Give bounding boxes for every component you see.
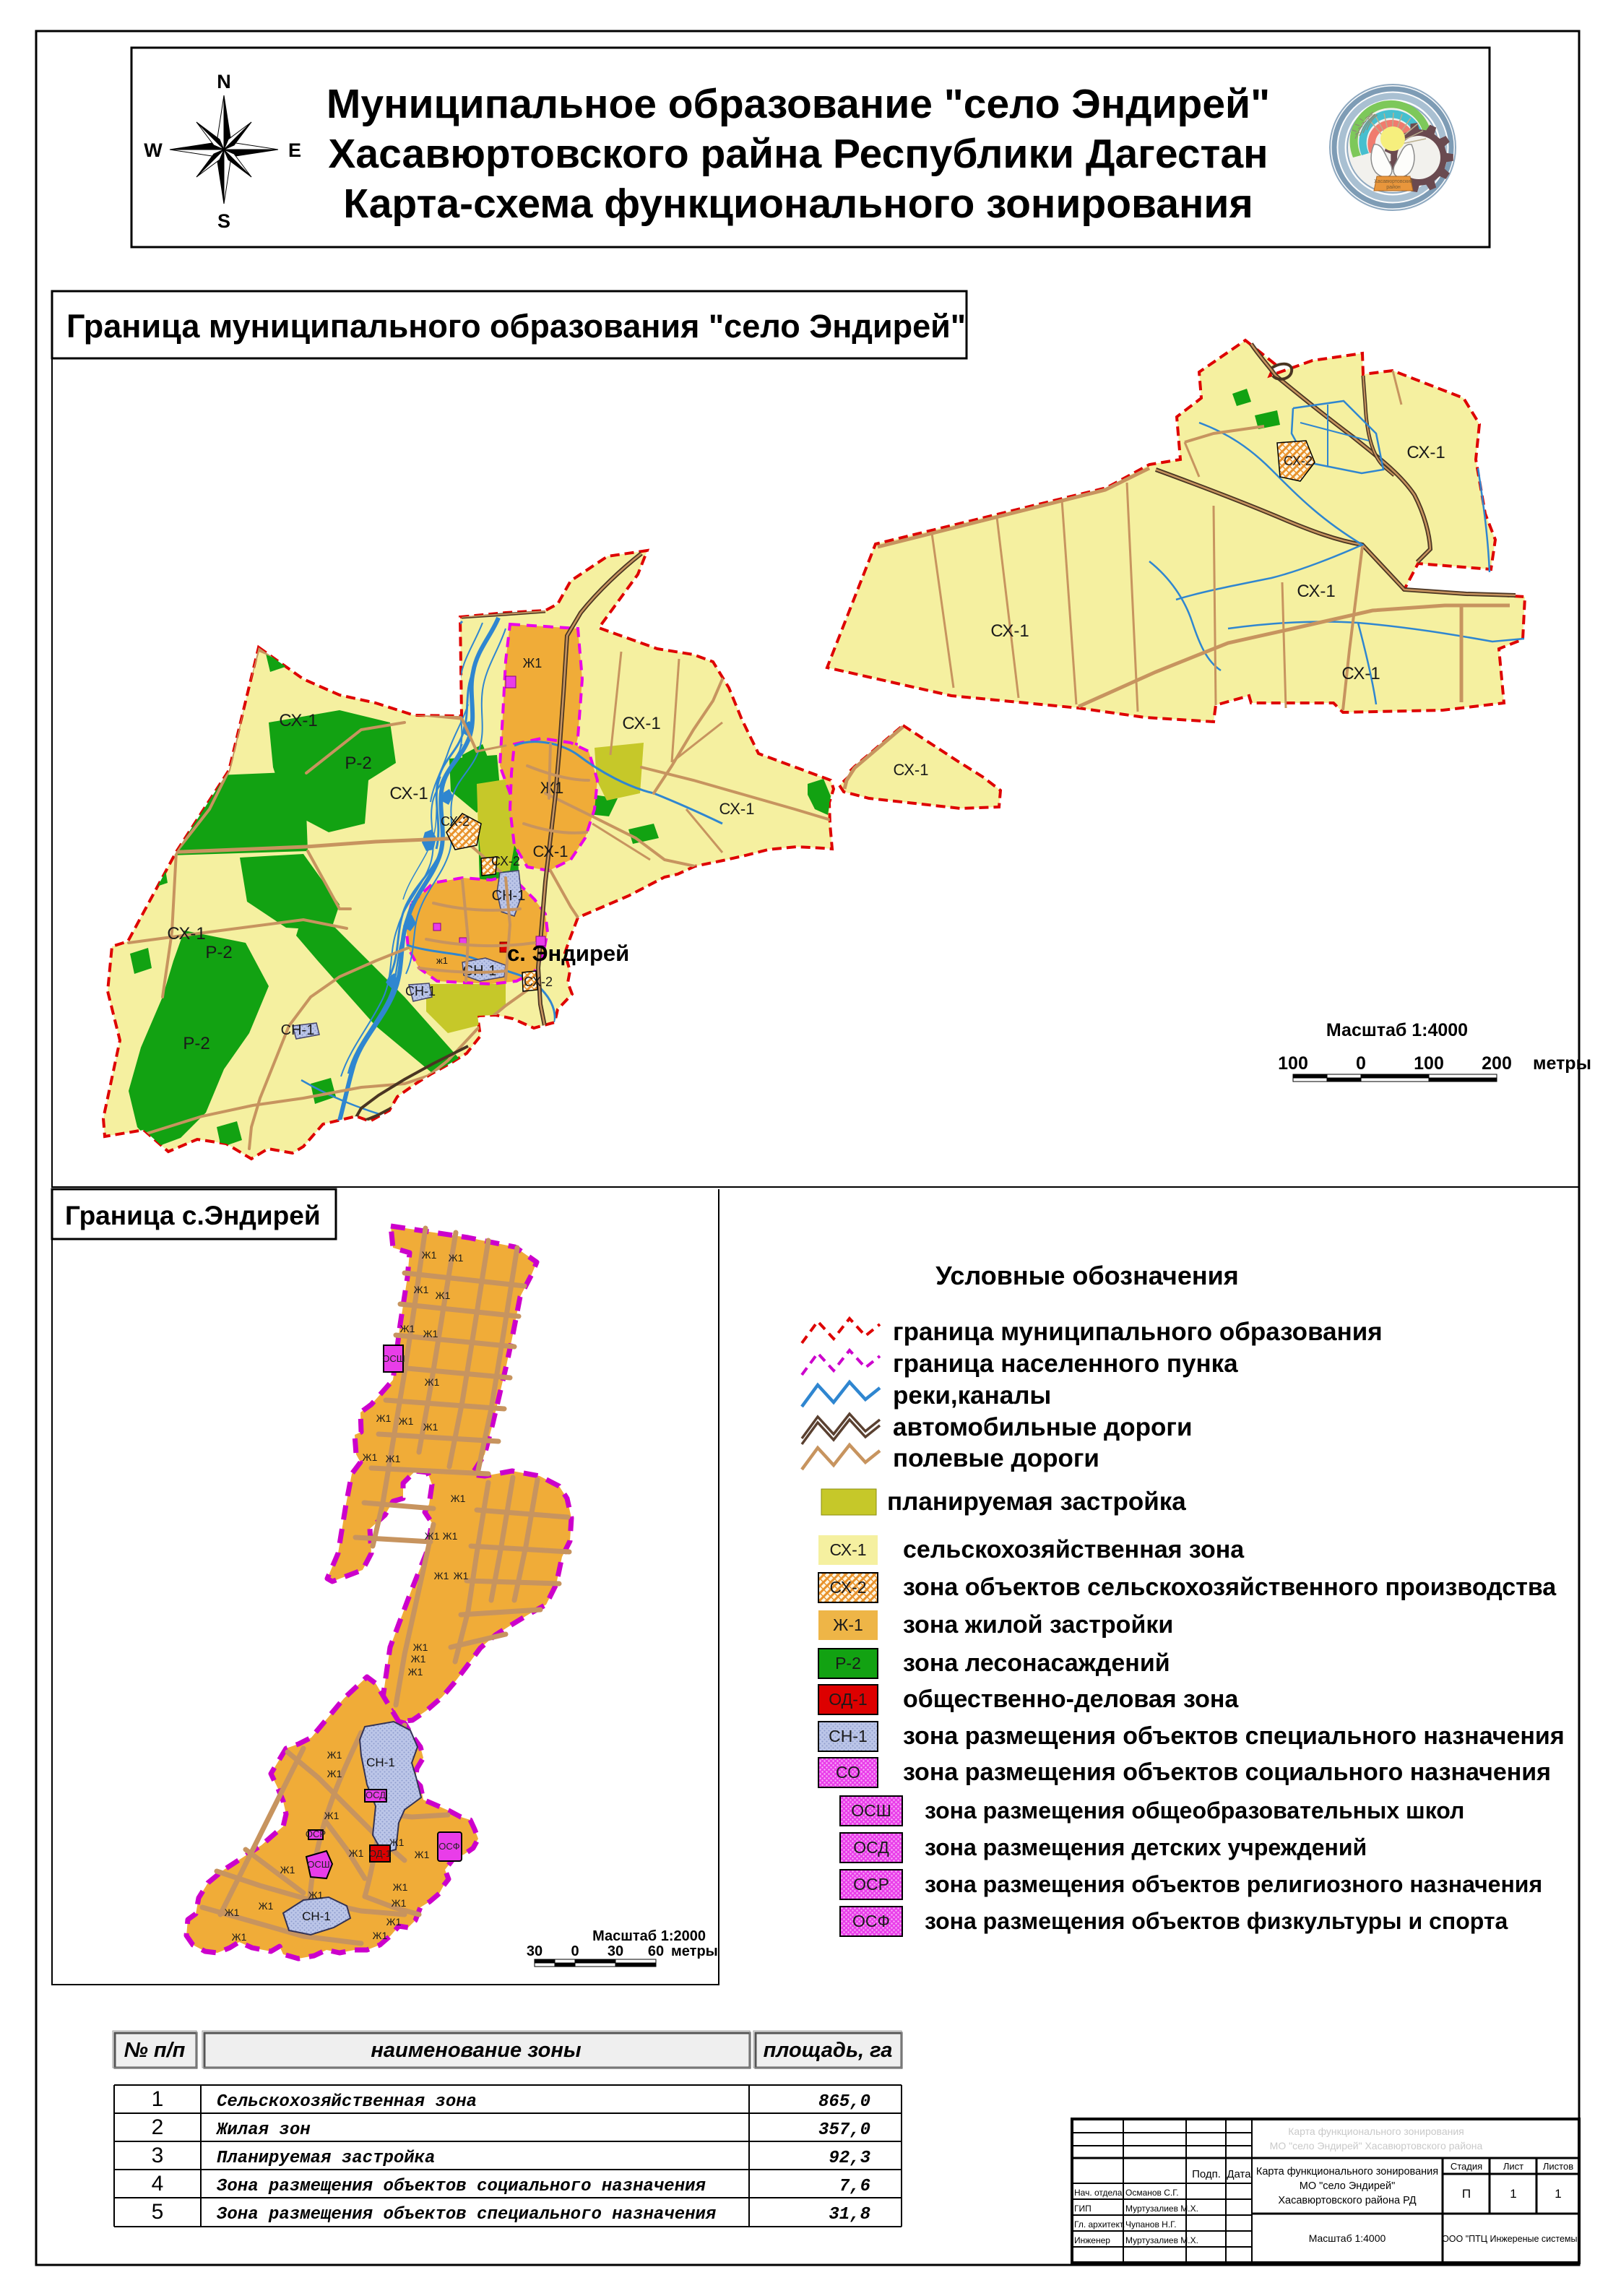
- svg-text:СХ-1: СХ-1: [1406, 443, 1445, 462]
- svg-text:Ж1: Ж1: [389, 1837, 405, 1848]
- svg-text:Хасавюртовского района РД: Хасавюртовского района РД: [1278, 2195, 1416, 2206]
- svg-text:зона лесонасаждений: зона лесонасаждений: [903, 1649, 1170, 1677]
- svg-text:МО "село Эндирей" Хасавюртовск: МО "село Эндирей" Хасавюртовского района: [1270, 2140, 1483, 2152]
- svg-text:Ж1: Ж1: [540, 779, 564, 797]
- svg-text:СХ-1: СХ-1: [389, 784, 428, 803]
- svg-text:ОСР: ОСР: [306, 1829, 326, 1839]
- svg-text:Гл. архитект.: Гл. архитект.: [1074, 2219, 1125, 2230]
- svg-text:СХ-2: СХ-2: [1284, 454, 1313, 468]
- svg-text:Р-2: Р-2: [835, 1654, 861, 1673]
- svg-text:сельскохозяйственная зона: сельскохозяйственная зона: [903, 1536, 1245, 1563]
- svg-text:зона размещения объектов физку: зона размещения объектов физкультуры и с…: [925, 1908, 1508, 1934]
- svg-text:ж1: ж1: [436, 955, 448, 966]
- svg-text:Ж1: Ж1: [436, 1290, 451, 1301]
- svg-text:ОСШ: ОСШ: [851, 1801, 891, 1820]
- svg-text:Ж1: Ж1: [413, 1641, 428, 1653]
- svg-text:Граница муниципального образов: Граница муниципального образования "село…: [66, 308, 966, 345]
- svg-text:П: П: [1462, 2187, 1471, 2201]
- svg-text:Р-2: Р-2: [183, 1034, 209, 1053]
- svg-text:Зона размещения объектов социа: Зона размещения объектов социального наз…: [216, 2177, 706, 2196]
- svg-text:Ж1: Ж1: [451, 1493, 466, 1504]
- svg-text:Сельскохозяйственная зона: Сельскохозяйственная зона: [217, 2092, 477, 2112]
- svg-text:СХ-2: СХ-2: [829, 1578, 866, 1597]
- svg-text:Муртузалиев М.Х.: Муртузалиев М.Х.: [1125, 2235, 1198, 2245]
- svg-text:Ж1: Ж1: [386, 1453, 401, 1464]
- svg-text:СХ-2: СХ-2: [441, 814, 470, 829]
- svg-text:реки,каналы: реки,каналы: [893, 1381, 1051, 1410]
- svg-text:Граница с.Эндирей: Граница с.Эндирей: [65, 1201, 321, 1230]
- svg-text:ОСД: ОСД: [366, 1790, 386, 1800]
- svg-text:Стадия: Стадия: [1451, 2161, 1482, 2172]
- svg-text:Листов: Листов: [1543, 2161, 1573, 2172]
- svg-text:4: 4: [152, 2172, 164, 2196]
- svg-text:Ж1: Ж1: [373, 1930, 388, 1941]
- svg-text:Ж1: Ж1: [363, 1451, 378, 1463]
- svg-text:СХ-1: СХ-1: [279, 711, 317, 730]
- svg-text:Ж1: Ж1: [392, 1897, 407, 1909]
- svg-text:200: 200: [1482, 1053, 1512, 1074]
- svg-text:Османов С.Г.: Османов С.Г.: [1125, 2188, 1179, 2198]
- svg-text:E: E: [288, 139, 301, 161]
- svg-text:7,6: 7,6: [839, 2177, 870, 2196]
- svg-text:зона размещения объектов специ: зона размещения объектов специального на…: [903, 1722, 1565, 1750]
- svg-text:наименование зоны: наименование зоны: [371, 2039, 581, 2062]
- svg-text:Муниципальное образование "сел: Муниципальное образование "село Эндирей": [327, 81, 1270, 127]
- svg-text:метры: метры: [671, 1943, 718, 1959]
- svg-text:Р-2: Р-2: [345, 754, 371, 773]
- svg-text:Ж1: Ж1: [393, 1881, 408, 1893]
- svg-text:1: 1: [152, 2087, 164, 2111]
- svg-text:ООО "ПТЦ Инжереные системы": ООО "ПТЦ Инжереные системы": [1442, 2234, 1581, 2244]
- svg-text:зона размещения детских учрежд: зона размещения детских учреждений: [925, 1834, 1367, 1860]
- svg-text:СХ-1: СХ-1: [990, 621, 1029, 641]
- svg-text:30: 30: [527, 1943, 543, 1959]
- svg-text:Карта-схема функционального зо: Карта-схема функционального зонирования: [343, 181, 1253, 227]
- svg-text:зона жилой застройки: зона жилой застройки: [903, 1611, 1173, 1639]
- svg-text:Подп.: Подп.: [1192, 2168, 1221, 2180]
- svg-text:Зона размещения объектов специ: Зона размещения объектов специального на…: [216, 2205, 717, 2224]
- svg-text:Ж1: Ж1: [400, 1323, 415, 1334]
- svg-text:Условные обозначения: Условные обозначения: [935, 1261, 1238, 1290]
- svg-text:Ж1: Ж1: [422, 1249, 437, 1261]
- svg-text:СО: СО: [836, 1763, 860, 1782]
- svg-text:ОСР: ОСР: [853, 1875, 889, 1894]
- svg-text:Ж1: Ж1: [523, 656, 543, 670]
- svg-text:Ж1: Ж1: [443, 1530, 458, 1542]
- svg-text:Ж1: Ж1: [414, 1284, 429, 1295]
- svg-text:Дата: Дата: [1227, 2168, 1251, 2180]
- svg-text:Чупанов Н.Г.: Чупанов Н.Г.: [1125, 2219, 1177, 2230]
- svg-text:ОД-1: ОД-1: [369, 1848, 391, 1859]
- svg-text:Ж1: Ж1: [225, 1907, 240, 1918]
- svg-text:СХ-1: СХ-1: [829, 1540, 866, 1559]
- svg-text:СХ-1: СХ-1: [894, 761, 929, 779]
- svg-text:граница населенного пунка: граница населенного пунка: [893, 1350, 1238, 1378]
- svg-text:Лист: Лист: [1503, 2161, 1523, 2172]
- svg-text:92,3: 92,3: [829, 2149, 870, 2168]
- svg-text:Ж1: Ж1: [324, 1810, 340, 1821]
- svg-text:100: 100: [1414, 1053, 1444, 1074]
- svg-text:зона размещения объектов социа: зона размещения объектов социального наз…: [903, 1758, 1551, 1786]
- svg-text:Ж1: Ж1: [280, 1864, 295, 1876]
- svg-text:МО "село Эндирей": МО "село Эндирей": [1300, 2180, 1395, 2192]
- svg-text:зона объектов сельскохозяйстве: зона объектов сельскохозяйственного прои…: [903, 1574, 1557, 1601]
- svg-text:Ж1: Ж1: [425, 1376, 440, 1388]
- svg-text:ОСШ: ОСШ: [382, 1353, 405, 1364]
- svg-text:Ж1: Ж1: [408, 1666, 423, 1678]
- svg-text:Инженер: Инженер: [1074, 2235, 1110, 2245]
- svg-text:№ п/п: № п/п: [124, 2039, 186, 2062]
- svg-text:СХ-1: СХ-1: [167, 924, 205, 944]
- svg-text:Ж1: Ж1: [425, 1530, 440, 1542]
- svg-text:СХ-1: СХ-1: [1297, 582, 1335, 601]
- svg-text:Ж1: Ж1: [386, 1916, 402, 1928]
- svg-text:СХ-1: СХ-1: [1341, 664, 1380, 683]
- svg-text:Р-2: Р-2: [205, 943, 232, 962]
- svg-text:Нач. отдела: Нач. отдела: [1074, 2188, 1123, 2198]
- svg-text:Ж1: Ж1: [259, 1900, 274, 1912]
- svg-text:ОСД: ОСД: [853, 1838, 889, 1857]
- svg-text:Ж1: Ж1: [349, 1847, 364, 1859]
- svg-text:Жилая зон: Жилая зон: [215, 2120, 311, 2140]
- svg-text:ОСФ: ОСФ: [852, 1912, 890, 1930]
- svg-text:ОСШ: ОСШ: [307, 1859, 329, 1870]
- svg-text:31,8: 31,8: [829, 2205, 870, 2224]
- svg-text:автомобильные дороги: автомобильные дороги: [893, 1413, 1192, 1441]
- svg-text:с. Эндирей: с. Эндирей: [507, 941, 629, 966]
- svg-text:100: 100: [1278, 1053, 1308, 1074]
- svg-text:СХ-1: СХ-1: [533, 842, 569, 860]
- svg-text:ОД-1: ОД-1: [829, 1690, 867, 1709]
- svg-text:Муртузалиев М.Х.: Муртузалиев М.Х.: [1125, 2204, 1198, 2214]
- svg-text:ГИП: ГИП: [1074, 2204, 1092, 2214]
- svg-text:Масштаб 1:4000: Масштаб 1:4000: [1309, 2232, 1386, 2244]
- svg-text:Масштаб 1:2000: Масштаб 1:2000: [592, 1928, 706, 1944]
- svg-text:Ж1: Ж1: [423, 1421, 438, 1433]
- svg-text:Ж1: Ж1: [434, 1570, 449, 1581]
- svg-text:0: 0: [571, 1943, 579, 1959]
- svg-text:район: район: [1386, 184, 1401, 190]
- svg-text:СХ-2: СХ-2: [491, 854, 520, 868]
- svg-text:Хасавюртовский: Хасавюртовский: [1374, 178, 1413, 184]
- svg-text:Карта функционального зонирова: Карта функционального зонирования: [1256, 2166, 1438, 2178]
- svg-text:1: 1: [1555, 2187, 1561, 2201]
- svg-text:Ж1: Ж1: [308, 1889, 324, 1901]
- svg-text:5: 5: [152, 2200, 164, 2224]
- svg-text:2: 2: [152, 2115, 164, 2139]
- svg-text:СН-1: СН-1: [366, 1756, 395, 1769]
- svg-text:Ж1: Ж1: [449, 1252, 464, 1264]
- svg-text:площадь, га: площадь, га: [764, 2039, 893, 2062]
- svg-text:Ж1: Ж1: [411, 1653, 426, 1665]
- svg-text:Карта функционального зонирова: Карта функционального зонирования: [1288, 2125, 1464, 2137]
- svg-text:Ж1: Ж1: [327, 1768, 342, 1779]
- svg-text:ОСФ: ОСФ: [438, 1841, 460, 1852]
- svg-text:Ж1: Ж1: [399, 1415, 414, 1427]
- svg-text:Ж1: Ж1: [415, 1849, 430, 1860]
- svg-text:30: 30: [608, 1943, 623, 1959]
- svg-text:Ж1: Ж1: [327, 1749, 342, 1761]
- svg-text:S: S: [217, 210, 230, 232]
- svg-text:Ж1: Ж1: [376, 1412, 392, 1424]
- svg-text:СХ-2: СХ-2: [524, 975, 553, 989]
- svg-text:1: 1: [1510, 2187, 1516, 2201]
- svg-text:граница муниципального образов: граница муниципального образования: [893, 1318, 1383, 1346]
- svg-text:СН-1: СН-1: [281, 1022, 315, 1038]
- svg-text:общественно-деловая зона: общественно-деловая зона: [903, 1686, 1239, 1713]
- svg-text:СН-1: СН-1: [829, 1727, 868, 1745]
- svg-text:Планируемая застройка: Планируемая застройка: [217, 2149, 435, 2168]
- svg-text:357,0: 357,0: [818, 2120, 870, 2140]
- svg-text:полевые дороги: полевые дороги: [893, 1444, 1099, 1472]
- svg-text:3: 3: [152, 2144, 164, 2167]
- svg-text:N: N: [217, 71, 231, 92]
- svg-text:Ж1: Ж1: [232, 1931, 247, 1943]
- svg-text:СН-1: СН-1: [405, 984, 436, 998]
- svg-text:865,0: 865,0: [818, 2092, 870, 2112]
- svg-text:W: W: [144, 139, 163, 161]
- svg-text:Ж-1: Ж-1: [833, 1615, 863, 1634]
- svg-text:Ж1: Ж1: [423, 1328, 438, 1339]
- svg-text:СХ-1: СХ-1: [719, 800, 755, 818]
- svg-text:зона размещения общеобразовате: зона размещения общеобразовательных школ: [925, 1797, 1464, 1824]
- svg-text:Хасавюртовского райна Республи: Хасавюртовского райна Республики Дагеста…: [328, 131, 1268, 177]
- svg-text:метры: метры: [1533, 1053, 1591, 1074]
- svg-text:СН-1: СН-1: [302, 1909, 331, 1923]
- svg-text:0: 0: [1356, 1053, 1366, 1074]
- svg-text:зона размещения объектов религ: зона размещения объектов религиозного на…: [925, 1871, 1542, 1897]
- svg-text:60: 60: [648, 1943, 664, 1959]
- svg-text:Ж1: Ж1: [454, 1570, 469, 1581]
- svg-text:СХ-1: СХ-1: [622, 714, 660, 733]
- svg-text:Масштаб 1:4000: Масштаб 1:4000: [1326, 1020, 1468, 1040]
- svg-text:планируемая застройка: планируемая застройка: [887, 1488, 1186, 1516]
